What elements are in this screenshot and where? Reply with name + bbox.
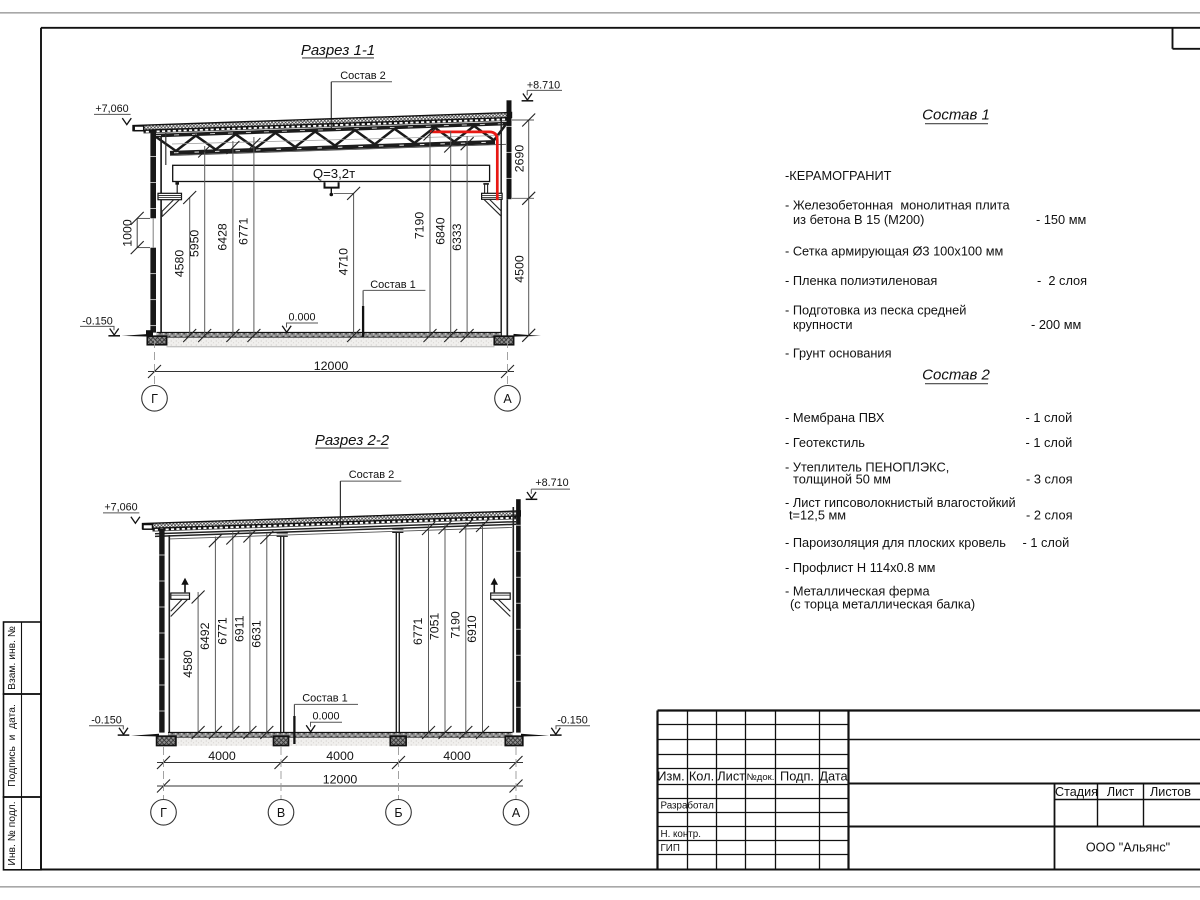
svg-text:4000: 4000 [326,749,354,763]
svg-text:А: А [512,806,521,820]
svg-text:4710: 4710 [336,248,350,276]
svg-text:- Мембрана ПВХ: - Мембрана ПВХ [785,410,885,425]
svg-text:6910: 6910 [465,615,479,643]
svg-text:Взам. инв. №: Взам. инв. № [7,626,18,690]
svg-text:Б: Б [394,806,402,820]
svg-text:Инв. № подл.: Инв. № подл. [7,801,18,865]
svg-text:из бетона В 15 (М200): из бетона В 15 (М200) [793,212,924,227]
svg-text:2690: 2690 [513,145,527,173]
svg-text:+8.710: +8.710 [527,79,560,91]
svg-text:Листов: Листов [1150,785,1191,799]
svg-text:Изм.: Изм. [657,769,684,784]
svg-text:Подпись и дата.: Подпись и дата. [7,704,18,787]
svg-text:- Подготовка из песка средней: - Подготовка из песка средней [785,303,966,318]
svg-text:+8.710: +8.710 [535,477,568,489]
svg-text:- 1 слой: - 1 слой [1026,435,1073,450]
svg-text:5950: 5950 [187,230,201,258]
svg-text:4500: 4500 [513,255,527,283]
svg-text:- 1 слой: - 1 слой [1026,410,1073,425]
svg-text:- 200 мм: - 200 мм [1031,317,1081,332]
svg-text:6771: 6771 [411,617,425,645]
svg-text:А: А [503,392,512,406]
svg-text:- Геотекстиль: - Геотекстиль [785,435,865,450]
svg-text:t=12,5 мм: t=12,5 мм [789,508,846,523]
svg-text:-КЕРАМОГРАНИТ: -КЕРАМОГРАНИТ [785,168,892,183]
svg-text:- 3 слоя: - 3 слоя [1026,472,1073,487]
svg-text:12000: 12000 [314,359,349,373]
svg-text:- 2 слоя: - 2 слоя [1026,508,1073,523]
svg-text:Разрез 1-1: Разрез 1-1 [301,42,375,59]
svg-text:+7,060: +7,060 [104,502,137,514]
svg-text:Разрез 2-2: Разрез 2-2 [315,432,390,449]
svg-text:- Грунт основания: - Грунт основания [785,346,892,361]
svg-text:4000: 4000 [208,749,236,763]
svg-text:6840: 6840 [433,217,447,245]
svg-text:ГИП: ГИП [661,843,680,854]
svg-text:4580: 4580 [172,250,186,278]
svg-text:Лист: Лист [1107,785,1135,799]
svg-text:- Железобетонная монолитная п: - Железобетонная монолитная плита [785,198,1011,213]
svg-text:толщиной 50 мм: толщиной 50 мм [793,472,891,487]
svg-text:6771: 6771 [216,617,230,645]
svg-text:- Пленка полиэтиленовая: - Пленка полиэтиленовая [785,273,937,288]
svg-text:Н. контр.: Н. контр. [661,829,701,840]
svg-text:Подп.: Подп. [780,769,814,784]
svg-text:6492: 6492 [198,622,212,650]
svg-text:Состав 1: Состав 1 [370,279,416,291]
svg-text:-0.150: -0.150 [91,714,122,726]
svg-text:- 1 слой: - 1 слой [1023,535,1070,550]
svg-text:№док.: №док. [747,772,775,783]
svg-text:1000: 1000 [121,219,135,247]
svg-text:(с торца металлическая балка): (с торца металлическая балка) [790,597,975,612]
svg-text:- Пароизоляция для плоских кро: - Пароизоляция для плоских кровель [785,535,1006,550]
svg-text:Кол.: Кол. [689,769,714,784]
svg-text:Дата: Дата [819,769,848,784]
svg-text:+7,060: +7,060 [95,103,128,115]
svg-text:Состав 2: Состав 2 [340,70,386,82]
svg-text:- 150 мм: - 150 мм [1036,212,1086,227]
svg-text:- 2 слоя: - 2 слоя [1037,273,1087,288]
svg-text:- Сетка армирующая Ø3 100х100: - Сетка армирующая Ø3 100х100 мм [785,244,1003,259]
svg-text:Q=3,2т: Q=3,2т [313,166,355,181]
svg-text:Лист: Лист [717,769,745,784]
svg-text:6911: 6911 [233,615,247,642]
svg-text:крупности: крупности [793,317,853,332]
svg-text:Состав 2: Состав 2 [922,367,990,384]
svg-text:7051: 7051 [428,613,442,641]
svg-text:В: В [277,806,285,820]
svg-text:6771: 6771 [237,217,251,245]
svg-text:6428: 6428 [216,223,230,251]
svg-text:ООО "Альянс": ООО "Альянс" [1086,841,1170,855]
svg-text:4000: 4000 [443,749,471,763]
svg-text:Состав 1: Состав 1 [302,693,348,705]
svg-text:Г: Г [151,392,158,406]
svg-text:7190: 7190 [413,212,427,240]
svg-text:Г: Г [160,806,167,820]
svg-text:-0.150: -0.150 [557,714,588,726]
svg-text:12000: 12000 [323,772,358,786]
svg-text:- Профлист Н 114х0.8 мм: - Профлист Н 114х0.8 мм [785,560,935,575]
svg-text:0.000: 0.000 [288,312,315,324]
svg-text:0.000: 0.000 [312,711,339,723]
svg-text:Состав 1: Состав 1 [922,107,990,124]
svg-text:Стадия: Стадия [1055,785,1098,799]
svg-text:-0.150: -0.150 [82,315,113,327]
svg-text:Разработал: Разработал [661,801,715,812]
svg-text:6333: 6333 [450,223,464,251]
svg-text:7190: 7190 [449,611,463,639]
svg-text:6631: 6631 [250,620,264,648]
svg-text:Состав 2: Состав 2 [349,469,395,481]
svg-text:4580: 4580 [181,650,195,678]
